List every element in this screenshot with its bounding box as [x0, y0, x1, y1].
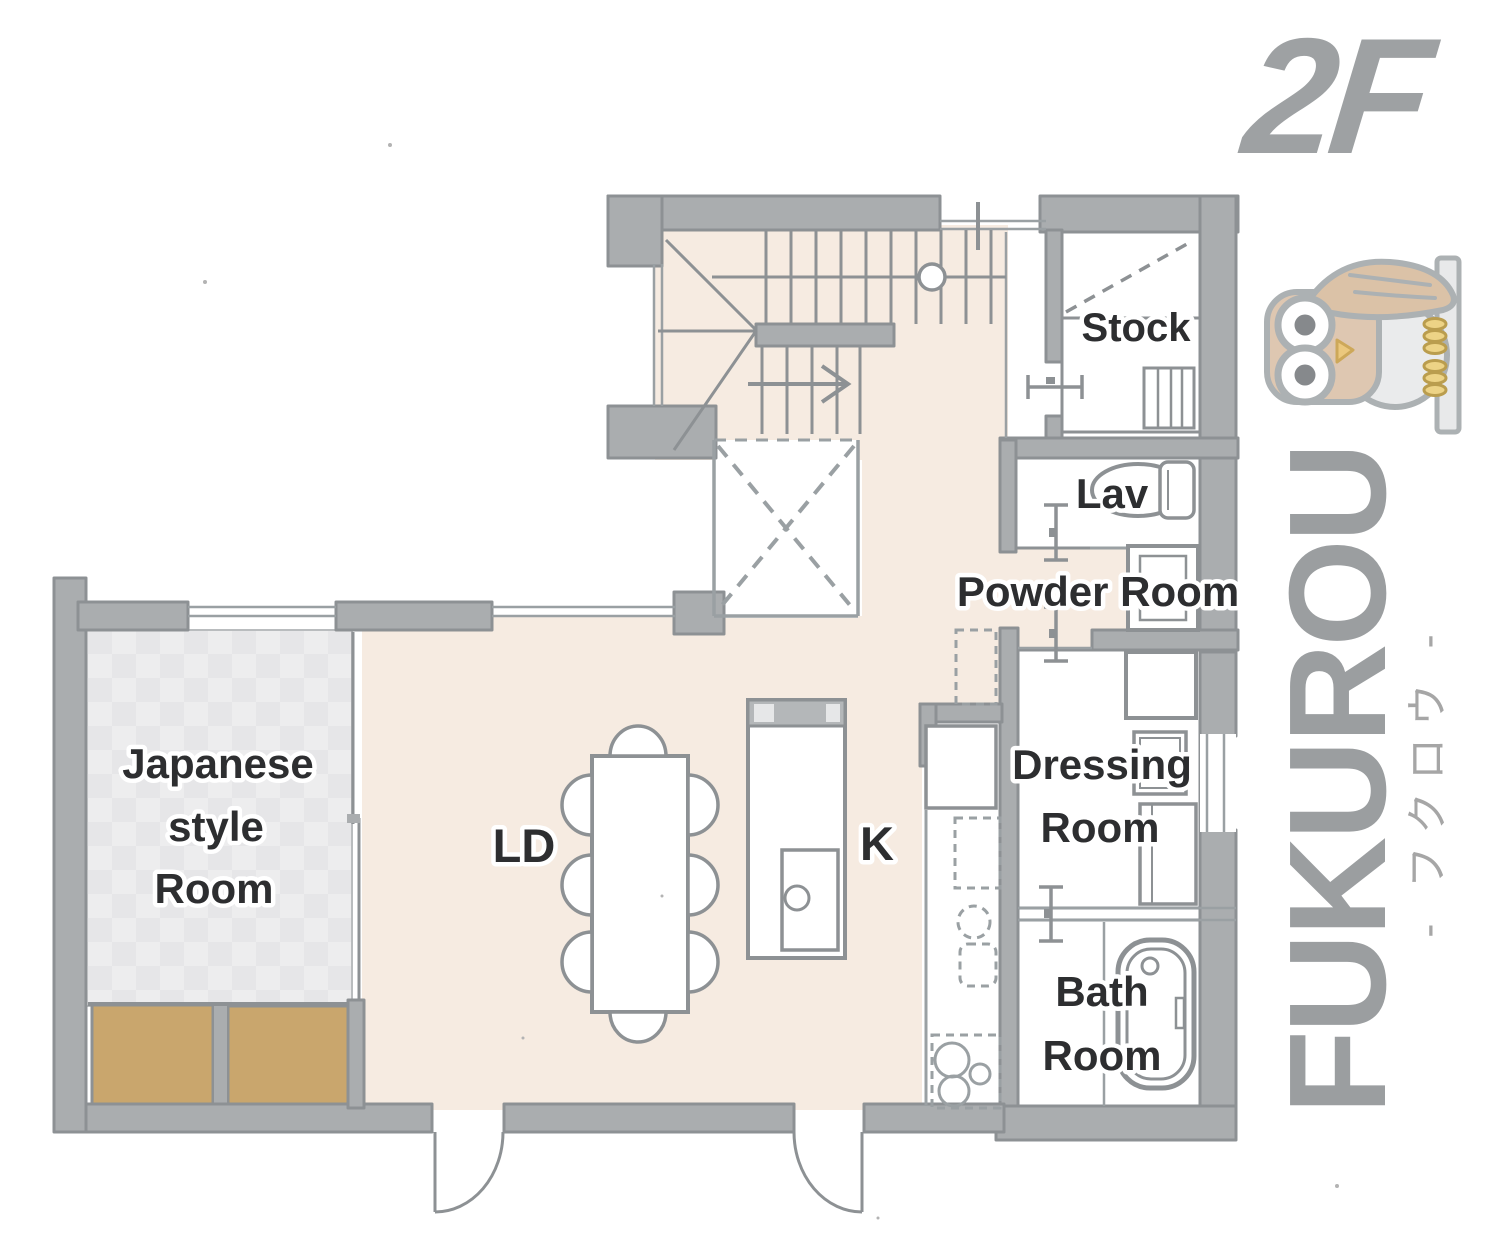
lav-label: Lav: [1076, 470, 1149, 517]
pantry-box: [926, 726, 996, 808]
closet: [228, 1006, 350, 1104]
stock-label: Stock: [1082, 306, 1192, 350]
shelf: [1144, 368, 1194, 428]
dressing-room-label: Dressing: [1012, 741, 1192, 788]
washing-machine: [1126, 652, 1196, 718]
faucet: [785, 886, 809, 910]
bath-room-label: Bath: [1055, 968, 1148, 1015]
owl-on-pole-icon: [1255, 240, 1470, 440]
bath-room-label: Room: [1043, 1032, 1162, 1079]
stair-start-marker: [919, 264, 945, 290]
swing-door: [435, 1132, 503, 1212]
powder-room-label: Powder Room: [957, 568, 1239, 615]
living-dining-label: LD: [493, 819, 556, 872]
japanese-room-label: style: [168, 803, 264, 850]
dressing-room-label: Room: [1041, 804, 1160, 851]
house-name-kana: - フクロウ -: [1398, 520, 1458, 1040]
closet: [92, 1005, 213, 1104]
closet-divider: [213, 1003, 228, 1105]
dining-table: [592, 756, 688, 1012]
japanese-room-label: Japanese: [122, 740, 313, 787]
kitchen-island: [748, 700, 845, 958]
floor-label: 2F: [1237, 14, 1433, 179]
swing-door: [794, 1132, 862, 1212]
house-name: FUKUROU: [1263, 430, 1413, 1130]
kitchen-label: K: [860, 817, 894, 870]
japanese-room-label: Room: [155, 865, 274, 912]
floor-plan-page: Stock Lav Powder Room Dressing Room Bath…: [0, 0, 1500, 1250]
